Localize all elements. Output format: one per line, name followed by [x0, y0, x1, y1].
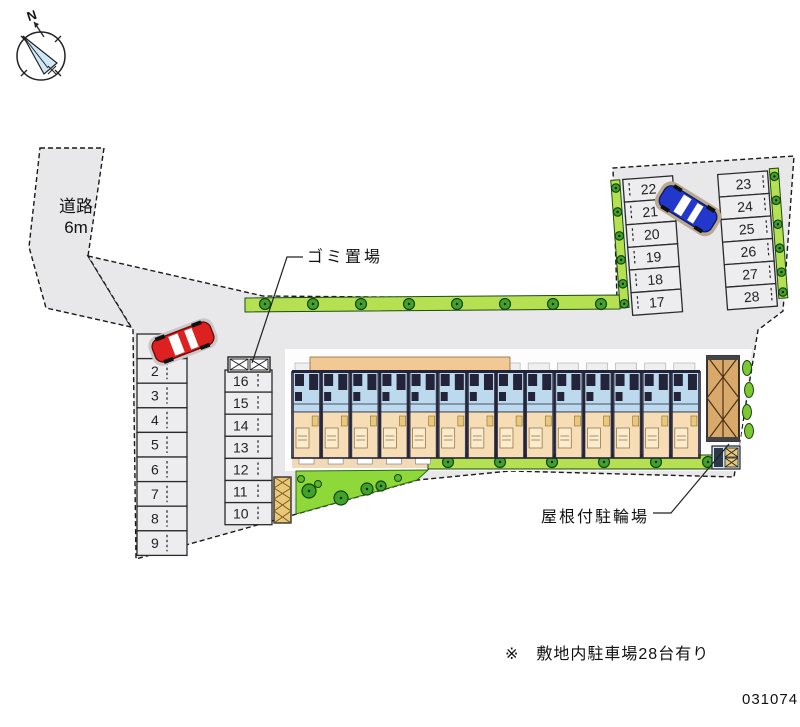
parking-stall-4: 4: [137, 408, 187, 433]
parking-stall-24: 24: [719, 193, 771, 219]
building-unit: [670, 363, 699, 458]
parking-stall-number: 16: [233, 373, 249, 389]
parking-stall-number: 24: [737, 198, 754, 215]
parking-stall-number: 3: [151, 388, 159, 404]
parking-stall-11: 11: [225, 481, 272, 503]
parking-stall-3: 3: [137, 383, 187, 408]
site-plan-svg: 222120191817232425262728 123456789161514…: [0, 0, 800, 727]
site-note: ※ 敷地内駐車場28台有り: [505, 640, 709, 664]
storage-box: [712, 446, 740, 469]
parking-stall-number: 10: [233, 506, 249, 522]
building-roof-band: [310, 357, 510, 371]
building-unit: [524, 363, 553, 458]
hedge-top: [245, 295, 620, 312]
parking-stall-26: 26: [723, 239, 775, 265]
compass-icon: [17, 22, 65, 80]
building-unit: [466, 363, 495, 458]
parking-stall-19: 19: [628, 244, 680, 270]
parking-stall-8: 8: [137, 506, 187, 531]
building-unit: [294, 363, 320, 464]
building-unit: [611, 363, 640, 458]
building-unit: [582, 363, 611, 458]
parking-stall-number: 8: [151, 511, 159, 527]
parking-stall-number: 7: [151, 486, 159, 502]
parking-stall-number: 23: [735, 175, 752, 192]
parking-stall-9: 9: [137, 531, 187, 556]
parking-stall-number: 20: [643, 226, 660, 243]
parking-stall-number: 18: [647, 271, 664, 288]
road-label-line1: 道路: [44, 196, 108, 217]
building-unit: [437, 363, 466, 458]
building-unit: [349, 363, 378, 464]
parking-stall-13: 13: [225, 436, 272, 458]
building-unit: [495, 363, 524, 458]
parking-stall-number: 14: [233, 417, 249, 433]
road-label: 道路 6m: [44, 196, 108, 239]
bush-icon: [745, 383, 754, 398]
plan-number: 031074: [742, 691, 798, 708]
bush-icon: [315, 481, 322, 488]
parking-stall-12: 12: [225, 458, 272, 480]
building: [294, 363, 699, 464]
parking-stall-25: 25: [721, 216, 773, 242]
parking-stall-number: 5: [151, 437, 159, 453]
parking-stall-number: 4: [151, 412, 159, 428]
parking-stall-number: 2: [151, 363, 159, 379]
parking-stall-15: 15: [225, 392, 272, 414]
parking-stall-23: 23: [718, 171, 770, 197]
building-unit: [320, 363, 349, 464]
parking-stall-number: 17: [648, 294, 665, 311]
bush-icon: [395, 475, 402, 482]
parking-stall-number: 11: [233, 484, 248, 500]
building-unit: [641, 363, 670, 458]
garbage-station: [228, 357, 270, 372]
parking-stall-28: 28: [726, 284, 778, 310]
parking-stall-7: 7: [137, 482, 187, 507]
parking-stall-number: 27: [742, 266, 759, 283]
parking-stall-17: 17: [631, 289, 683, 315]
parking-stall-number: 9: [151, 535, 159, 551]
building-unit: [378, 363, 407, 464]
bush-icon: [298, 476, 305, 483]
parking-stall-number: 22: [640, 180, 657, 197]
site-plan: 222120191817232425262728 123456789161514…: [0, 0, 800, 727]
garbage-label: ゴミ置場: [307, 243, 383, 267]
covered-bicycle-shed: [707, 356, 739, 441]
road-label-line2: 6m: [44, 217, 108, 238]
parking-stall-number: 15: [233, 395, 249, 411]
parking-stall-number: 28: [743, 288, 760, 305]
parking-stall-5: 5: [137, 432, 187, 457]
parking-stall-number: 13: [233, 439, 249, 455]
building-unit: [407, 363, 436, 464]
parking-stall-27: 27: [724, 261, 776, 287]
parking-stall-20: 20: [626, 221, 678, 247]
parking-stall-16: 16: [225, 370, 272, 392]
parking-stall-6: 6: [137, 457, 187, 482]
parking-stall-number: 19: [645, 248, 662, 265]
bush-icon: [743, 361, 752, 376]
parking-stall-number: 26: [740, 243, 757, 260]
bike-rack: [274, 477, 291, 523]
parking-stall-18: 18: [629, 266, 681, 292]
parking-stall-number: 12: [233, 461, 249, 477]
bush-icon: [743, 405, 752, 420]
covered-bicycle-parking-label: 屋根付駐輪場: [541, 503, 649, 527]
bush-icon: [745, 424, 754, 439]
parking-stall-number: 25: [738, 221, 755, 238]
parking-stall-14: 14: [225, 414, 272, 436]
building-unit: [553, 363, 582, 458]
parking-stall-number: 6: [151, 461, 159, 477]
parking-stall-10: 10: [225, 503, 272, 525]
